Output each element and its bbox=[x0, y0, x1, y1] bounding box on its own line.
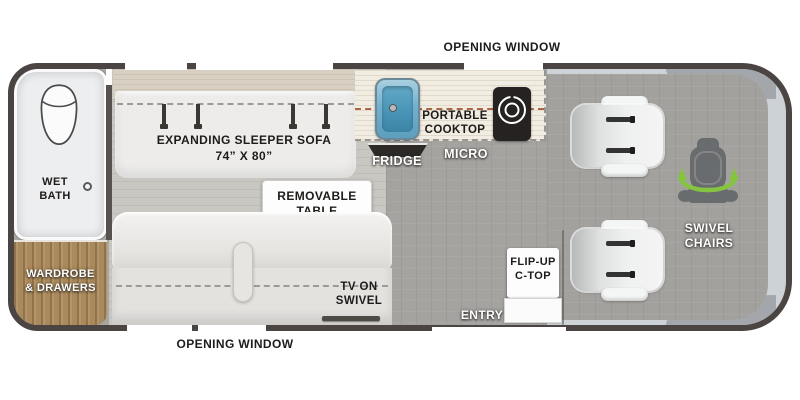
seatbelt-icon bbox=[606, 272, 632, 277]
seatbelt-icon bbox=[291, 104, 295, 124]
shower-drain-icon bbox=[83, 182, 92, 191]
toilet-icon bbox=[35, 82, 83, 154]
window-segment bbox=[125, 63, 187, 70]
portable-cooktop-label: PORTABLE COOKTOP bbox=[412, 109, 498, 138]
van-body: WET BATH WARDROBE & DRAWERS bbox=[8, 63, 792, 331]
portable-cooktop-appliance bbox=[493, 87, 531, 141]
flip-up-counter bbox=[504, 298, 562, 323]
faucet-icon bbox=[389, 104, 397, 112]
chair-armrest bbox=[601, 288, 648, 301]
flip-up-ctop-label-box: FLIP-UP C-TOP bbox=[507, 248, 559, 298]
chair-body bbox=[572, 105, 663, 167]
micro-label: MICRO bbox=[434, 147, 498, 163]
rv-floorplan: OPENING WINDOW OPENING WINDOW WET bbox=[0, 0, 800, 400]
chair-armrest bbox=[601, 164, 648, 177]
entry-opening bbox=[432, 325, 566, 332]
seatbelt-icon bbox=[606, 117, 632, 122]
opening-window-label-bottom: OPENING WINDOW bbox=[155, 337, 315, 352]
window-segment bbox=[464, 63, 543, 70]
armrest-icon bbox=[233, 242, 253, 302]
opening-window-label-top: OPENING WINDOW bbox=[422, 40, 582, 55]
sleeper-sofa-label: EXPANDING SLEEPER SOFA 74” X 80” bbox=[124, 133, 364, 164]
sofa-fold-line bbox=[117, 103, 354, 105]
burner-icon bbox=[495, 93, 529, 127]
window-segment bbox=[198, 325, 266, 332]
swivel-chair-driver bbox=[570, 220, 665, 301]
entry-step-line bbox=[562, 230, 564, 325]
flip-up-ctop-label: FLIP-UP C-TOP bbox=[507, 256, 559, 284]
fridge-label: FRIDGE bbox=[356, 154, 438, 170]
window-segment bbox=[127, 325, 192, 332]
seatbelt-icon bbox=[324, 104, 328, 124]
wardrobe-cabinet: WARDROBE & DRAWERS bbox=[14, 240, 107, 325]
seatbelt-icon bbox=[196, 104, 200, 124]
chair-body bbox=[572, 229, 663, 291]
seatbelt-icon bbox=[606, 148, 632, 153]
wet-bath-label: WET BATH bbox=[23, 176, 87, 204]
swivel-chair-passenger bbox=[570, 96, 665, 177]
van-interior: WET BATH WARDROBE & DRAWERS bbox=[14, 69, 786, 325]
tv-label: TV ON SWIVEL bbox=[322, 280, 396, 309]
window-segment bbox=[196, 63, 333, 70]
bath-divider-cap bbox=[106, 69, 112, 85]
wet-bath-room: WET BATH bbox=[14, 69, 107, 240]
tv-icon bbox=[322, 316, 380, 321]
swivel-seat-icon bbox=[678, 138, 738, 214]
swivel-chairs-label: SWIVEL CHAIRS bbox=[667, 221, 751, 251]
seatbelt-icon bbox=[606, 241, 632, 246]
seatbelt-icon bbox=[162, 104, 166, 124]
sink-basin bbox=[382, 86, 413, 132]
wardrobe-label: WARDROBE & DRAWERS bbox=[14, 268, 107, 296]
